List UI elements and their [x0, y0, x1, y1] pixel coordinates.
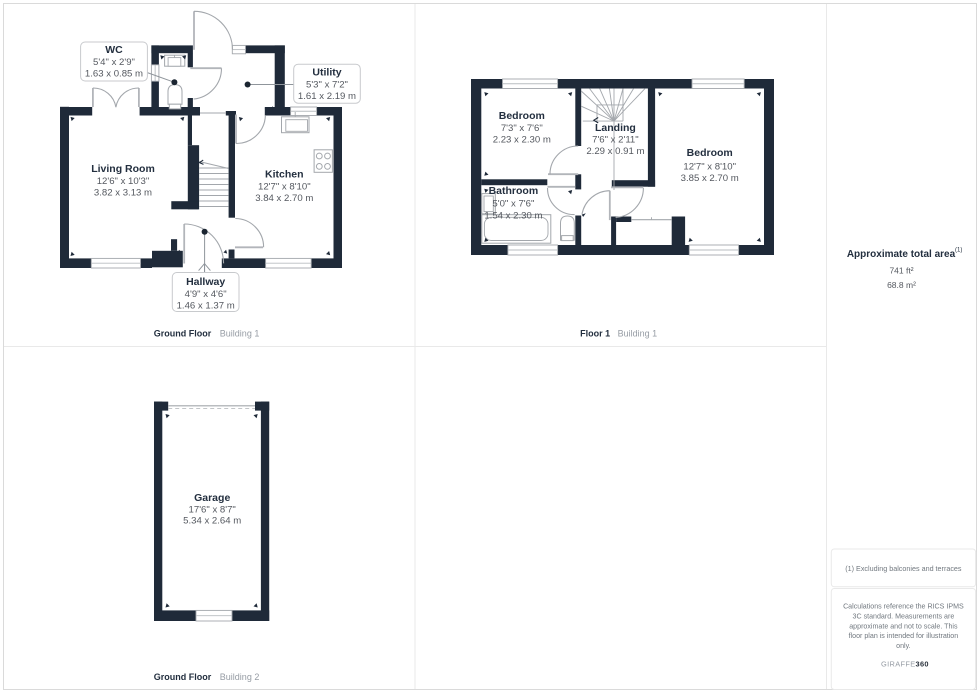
svg-text:1.54 x 2.30 m: 1.54 x 2.30 m — [484, 210, 542, 221]
svg-text:3.85 x 2.70 m: 3.85 x 2.70 m — [681, 173, 739, 184]
svg-text:Bedroom: Bedroom — [687, 147, 733, 159]
svg-text:3C standard. Measurements are: 3C standard. Measurements are — [853, 613, 955, 621]
svg-text:12'7" x 8'10": 12'7" x 8'10" — [683, 161, 736, 172]
svg-text:Building 1: Building 1 — [220, 329, 260, 339]
svg-text:(1): (1) — [955, 248, 962, 254]
svg-text:3.84 x 2.70 m: 3.84 x 2.70 m — [255, 193, 313, 204]
svg-text:Calculations reference the RIC: Calculations reference the RICS IPMS — [843, 603, 964, 611]
svg-text:741 ft²: 741 ft² — [889, 266, 913, 276]
svg-text:Utility: Utility — [312, 66, 341, 78]
svg-text:WC: WC — [105, 44, 123, 56]
svg-text:Bathroom: Bathroom — [489, 185, 539, 197]
svg-text:Approximate total area: Approximate total area — [847, 249, 956, 260]
svg-text:Living Room: Living Room — [91, 163, 155, 175]
svg-text:17'6" x 8'7": 17'6" x 8'7" — [189, 504, 236, 515]
svg-text:floor plan is intended for ill: floor plan is intended for illustration — [849, 632, 959, 640]
svg-text:12'7" x 8'10": 12'7" x 8'10" — [258, 182, 311, 193]
svg-text:7'3" x 7'6": 7'3" x 7'6" — [501, 123, 543, 134]
svg-text:approximate and not to scale.: approximate and not to scale. This — [849, 622, 958, 630]
svg-text:Ground Floor: Ground Floor — [154, 329, 212, 339]
svg-text:Building 2: Building 2 — [220, 672, 260, 682]
svg-text:1.63 x 0.85 m: 1.63 x 0.85 m — [85, 68, 143, 79]
svg-text:5'4" x 2'9": 5'4" x 2'9" — [93, 57, 135, 68]
svg-text:1.46 x 1.37 m: 1.46 x 1.37 m — [177, 301, 235, 312]
svg-text:7'6" x 2'11": 7'6" x 2'11" — [592, 135, 639, 146]
svg-text:2.23 x 2.30 m: 2.23 x 2.30 m — [493, 134, 551, 145]
svg-text:only.: only. — [896, 642, 910, 650]
svg-text:Kitchen: Kitchen — [265, 169, 304, 181]
svg-text:Floor 1: Floor 1 — [580, 329, 610, 339]
svg-text:GIRAFFE360: GIRAFFE360 — [881, 660, 929, 669]
svg-text:Ground Floor: Ground Floor — [154, 672, 212, 682]
svg-text:Building 1: Building 1 — [618, 329, 658, 339]
svg-text:5.34 x 2.64 m: 5.34 x 2.64 m — [183, 515, 241, 526]
svg-text:1.61 x 2.19 m: 1.61 x 2.19 m — [298, 91, 356, 102]
svg-text:Hallway: Hallway — [186, 276, 225, 288]
svg-text:12'6" x 10'3": 12'6" x 10'3" — [97, 176, 150, 187]
svg-text:2.29 x 0.91 m: 2.29 x 0.91 m — [586, 146, 644, 157]
svg-text:Landing: Landing — [595, 122, 636, 134]
svg-text:Bedroom: Bedroom — [499, 110, 545, 122]
svg-text:4'9" x 4'6": 4'9" x 4'6" — [185, 289, 227, 300]
svg-text:3.82 x 3.13 m: 3.82 x 3.13 m — [94, 188, 152, 199]
svg-text:5'3" x 7'2": 5'3" x 7'2" — [306, 80, 348, 91]
svg-text:68.8 m²: 68.8 m² — [887, 280, 916, 290]
svg-text:5'0" x 7'6": 5'0" x 7'6" — [492, 198, 534, 209]
svg-text:(1) Excluding balconies and te: (1) Excluding balconies and terraces — [845, 564, 962, 573]
svg-text:Garage: Garage — [194, 492, 230, 504]
